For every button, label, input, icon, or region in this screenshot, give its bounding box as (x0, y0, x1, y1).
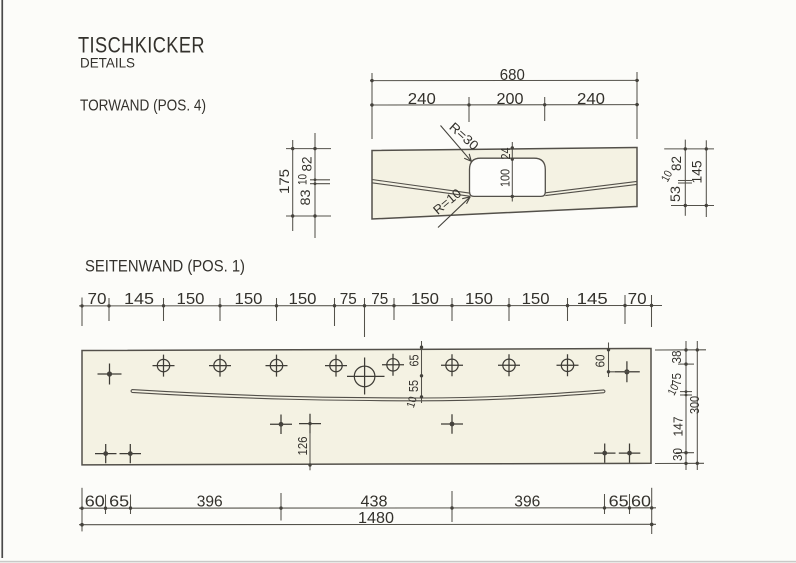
svg-text:175: 175 (277, 169, 292, 194)
svg-text:TORWAND (POS. 4): TORWAND (POS. 4) (80, 98, 206, 115)
svg-text:150: 150 (411, 291, 439, 308)
svg-text:150: 150 (235, 291, 263, 308)
svg-text:150: 150 (289, 291, 317, 308)
svg-text:55: 55 (407, 380, 421, 392)
svg-text:147: 147 (671, 417, 686, 437)
svg-text:145: 145 (577, 291, 608, 308)
svg-text:126: 126 (295, 437, 310, 456)
svg-text:65: 65 (408, 354, 422, 366)
svg-text:145: 145 (124, 291, 154, 308)
svg-text:38: 38 (669, 351, 684, 364)
svg-text:70: 70 (628, 291, 647, 308)
svg-text:1480: 1480 (358, 510, 394, 527)
svg-text:240: 240 (577, 91, 605, 108)
svg-text:100: 100 (499, 169, 513, 187)
svg-text:DETAILS: DETAILS (80, 55, 135, 71)
svg-text:SEITENWAND (POS. 1): SEITENWAND (POS. 1) (85, 257, 245, 276)
svg-text:300: 300 (687, 396, 702, 414)
svg-text:438: 438 (361, 493, 388, 510)
svg-text:145: 145 (690, 161, 705, 184)
svg-text:75: 75 (340, 291, 357, 308)
svg-text:82: 82 (300, 157, 315, 172)
svg-text:150: 150 (522, 291, 550, 308)
svg-text:680: 680 (500, 67, 525, 84)
svg-text:396: 396 (197, 493, 223, 510)
svg-text:65: 65 (109, 493, 129, 510)
svg-text:396: 396 (514, 493, 540, 510)
svg-text:60: 60 (593, 355, 608, 368)
svg-text:150: 150 (177, 291, 205, 308)
svg-text:83: 83 (298, 190, 313, 206)
svg-text:24: 24 (499, 147, 513, 159)
svg-text:10: 10 (298, 174, 310, 185)
svg-text:53: 53 (668, 186, 683, 202)
svg-text:240: 240 (408, 91, 436, 108)
svg-text:150: 150 (465, 291, 493, 308)
svg-text:70: 70 (88, 291, 107, 308)
svg-text:75: 75 (371, 291, 388, 308)
svg-text:65: 65 (609, 493, 629, 510)
svg-text:82: 82 (669, 156, 684, 171)
svg-text:60: 60 (85, 493, 105, 510)
svg-text:200: 200 (497, 91, 524, 108)
svg-text:60: 60 (631, 493, 651, 510)
svg-text:30: 30 (670, 448, 685, 461)
